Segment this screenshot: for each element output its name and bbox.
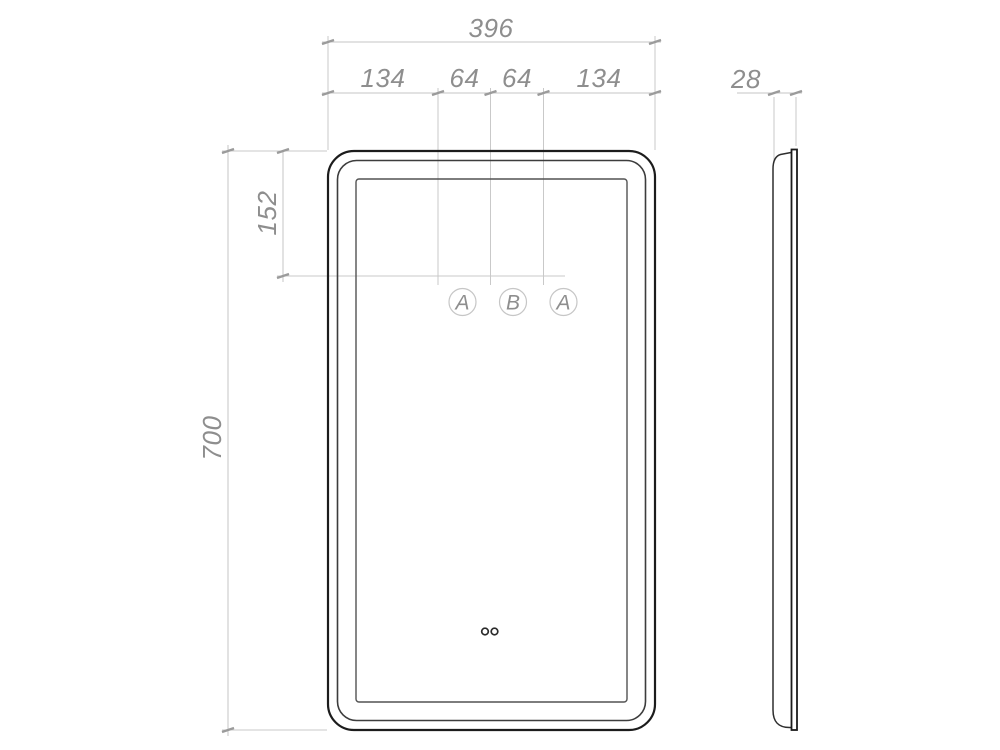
dimension-text-overall-width: 396 [469,13,514,43]
power-sensor-dots [482,628,498,635]
sensor-dot [482,628,489,635]
callout-label-a2: A [554,292,570,315]
dimension-overall-width: 396 [322,13,661,44]
mirror-inner-panel-outline [356,179,627,702]
drawing-sheet: 396 134 64 64 134 700 152 [0,0,1000,750]
mirror-frame-outline [338,161,646,721]
side-profile-outline [773,153,791,728]
dimension-text-sensor-offset: 152 [252,191,282,236]
side-glass-edge [792,150,798,731]
dimension-text-depth: 28 [730,64,761,94]
dimension-overall-height: 700 [197,145,234,736]
mirror-outer-outline [328,151,655,730]
sensor-dot [491,628,498,635]
dimension-text-segment-4: 134 [577,63,622,93]
front-view [328,151,655,730]
extension-lines [222,36,796,730]
callout-label-a1: A [453,292,469,315]
dimension-text-overall-height: 700 [197,416,227,461]
dimension-sensor-offset: 152 [252,149,289,282]
dimension-text-segment-3: 64 [502,63,532,93]
side-view [773,150,797,731]
callout-label-b: B [506,292,520,315]
sensor-callouts: A B A [449,289,577,316]
dimension-text-segment-2: 64 [450,63,480,93]
technical-drawing-canvas: 396 134 64 64 134 700 152 [0,0,1000,750]
dimension-text-segment-1: 134 [361,63,406,93]
dimension-top-segments: 134 64 64 134 [322,63,661,95]
dimension-depth: 28 [730,64,802,95]
